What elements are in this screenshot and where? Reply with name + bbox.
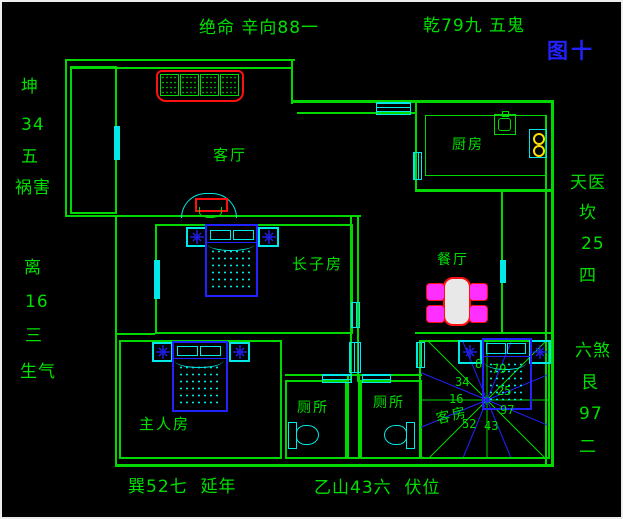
window — [413, 152, 422, 180]
nightstand — [229, 342, 250, 362]
annotation-right-lower-1: 六煞 — [575, 343, 611, 360]
window — [376, 102, 411, 115]
wall — [415, 189, 554, 192]
kitchen-counter — [425, 115, 546, 176]
pillow — [507, 343, 526, 354]
floorplan-canvas: 绝命 辛向88一 乾79九 五鬼 图十 坤 34 五 祸害 离 16 三 生气 … — [0, 0, 623, 519]
nightstand — [152, 342, 173, 362]
blanket-curve — [175, 354, 223, 368]
dining-chair — [469, 283, 488, 301]
mattress-dots — [178, 364, 220, 404]
closet-strip — [70, 66, 117, 214]
kitchen-sink — [494, 114, 516, 135]
dining-chair — [426, 283, 445, 301]
annotation-right-upper-3: 25 — [581, 236, 605, 253]
compass-number-5: 25 — [497, 385, 511, 397]
dining-table — [443, 277, 471, 326]
nightstand — [258, 227, 279, 247]
compass-cross-icon — [533, 345, 547, 359]
sofa-cushion — [160, 74, 179, 96]
figure-title: 图十 — [547, 35, 595, 65]
sofa-cushion — [180, 74, 199, 96]
annotation-bottom-left: 巽52七 延年 — [128, 479, 236, 496]
annotation-left-lower-1: 离 — [24, 260, 42, 277]
annotation-bottom-center: 乙山43六 伏位 — [314, 480, 440, 497]
pillow — [486, 343, 506, 354]
annotation-right-lower-2: 艮 — [581, 375, 599, 392]
annotation-right-upper-1: 天医 — [570, 175, 606, 192]
compass-number-3: 34 — [455, 376, 469, 388]
sofa-cushion — [220, 74, 239, 96]
wall — [65, 59, 295, 61]
annotation-left-upper-3: 五 — [21, 149, 39, 166]
door-panel — [500, 260, 506, 283]
blanket-curve — [208, 238, 254, 251]
window — [322, 374, 352, 383]
annotation-top-center: 绝命 辛向88一 — [199, 20, 319, 37]
wall — [291, 59, 293, 104]
annotation-left-upper-2: 34 — [21, 117, 45, 134]
dining-chair — [469, 305, 488, 323]
burner — [533, 133, 545, 145]
stove — [529, 129, 547, 158]
compass-number-1: 8 — [475, 358, 482, 370]
window — [362, 374, 391, 383]
annotation-left-upper-1: 坤 — [21, 79, 39, 96]
duct-shaft — [347, 374, 360, 459]
compass-cross-icon — [233, 345, 247, 359]
wall — [501, 192, 503, 261]
compass-cross-icon — [262, 230, 276, 244]
wall — [115, 215, 117, 467]
wall — [415, 332, 554, 334]
dining-chair — [426, 305, 445, 323]
wall — [115, 333, 155, 335]
annotation-right-lower-3: 97 — [579, 406, 603, 423]
door-panel — [114, 126, 120, 160]
wall — [551, 103, 554, 467]
annotation-right-upper-2: 坎 — [579, 205, 597, 222]
room-label-dining: 餐厅 — [437, 253, 469, 267]
wall — [501, 283, 503, 332]
door-panel — [154, 260, 160, 299]
annotation-left-lower-3: 三 — [25, 328, 43, 345]
annotation-right-lower-4: 二 — [579, 439, 597, 456]
burner — [533, 145, 545, 157]
tv-base — [199, 207, 222, 218]
window — [351, 302, 360, 328]
compass-number-8: 43 — [484, 420, 498, 432]
compass-cross-icon — [156, 345, 170, 359]
window — [416, 342, 425, 368]
compass-number-2: 79 — [492, 363, 506, 375]
window — [349, 342, 361, 373]
annotation-left-upper-4: 祸害 — [15, 180, 51, 197]
annotation-top-right: 乾79九 五鬼 — [423, 18, 525, 35]
compass-number-4: 16 — [449, 393, 463, 405]
compass-number-6: 97 — [500, 404, 514, 416]
annotation-left-lower-2: 16 — [25, 294, 49, 311]
annotation-left-lower-4: 生气 — [20, 364, 56, 381]
compass-cross-icon — [190, 230, 204, 244]
nightstand — [186, 227, 207, 247]
nightstand — [529, 340, 551, 364]
wall — [65, 59, 67, 217]
room-label-living: 客厅 — [213, 148, 247, 163]
wall — [293, 100, 554, 103]
sofa — [156, 70, 244, 102]
wall — [115, 464, 554, 467]
mattress-dots — [210, 248, 252, 290]
compass-number-7: 52 — [462, 418, 476, 430]
sofa-cushion — [200, 74, 219, 96]
annotation-right-upper-4: 四 — [579, 268, 597, 285]
